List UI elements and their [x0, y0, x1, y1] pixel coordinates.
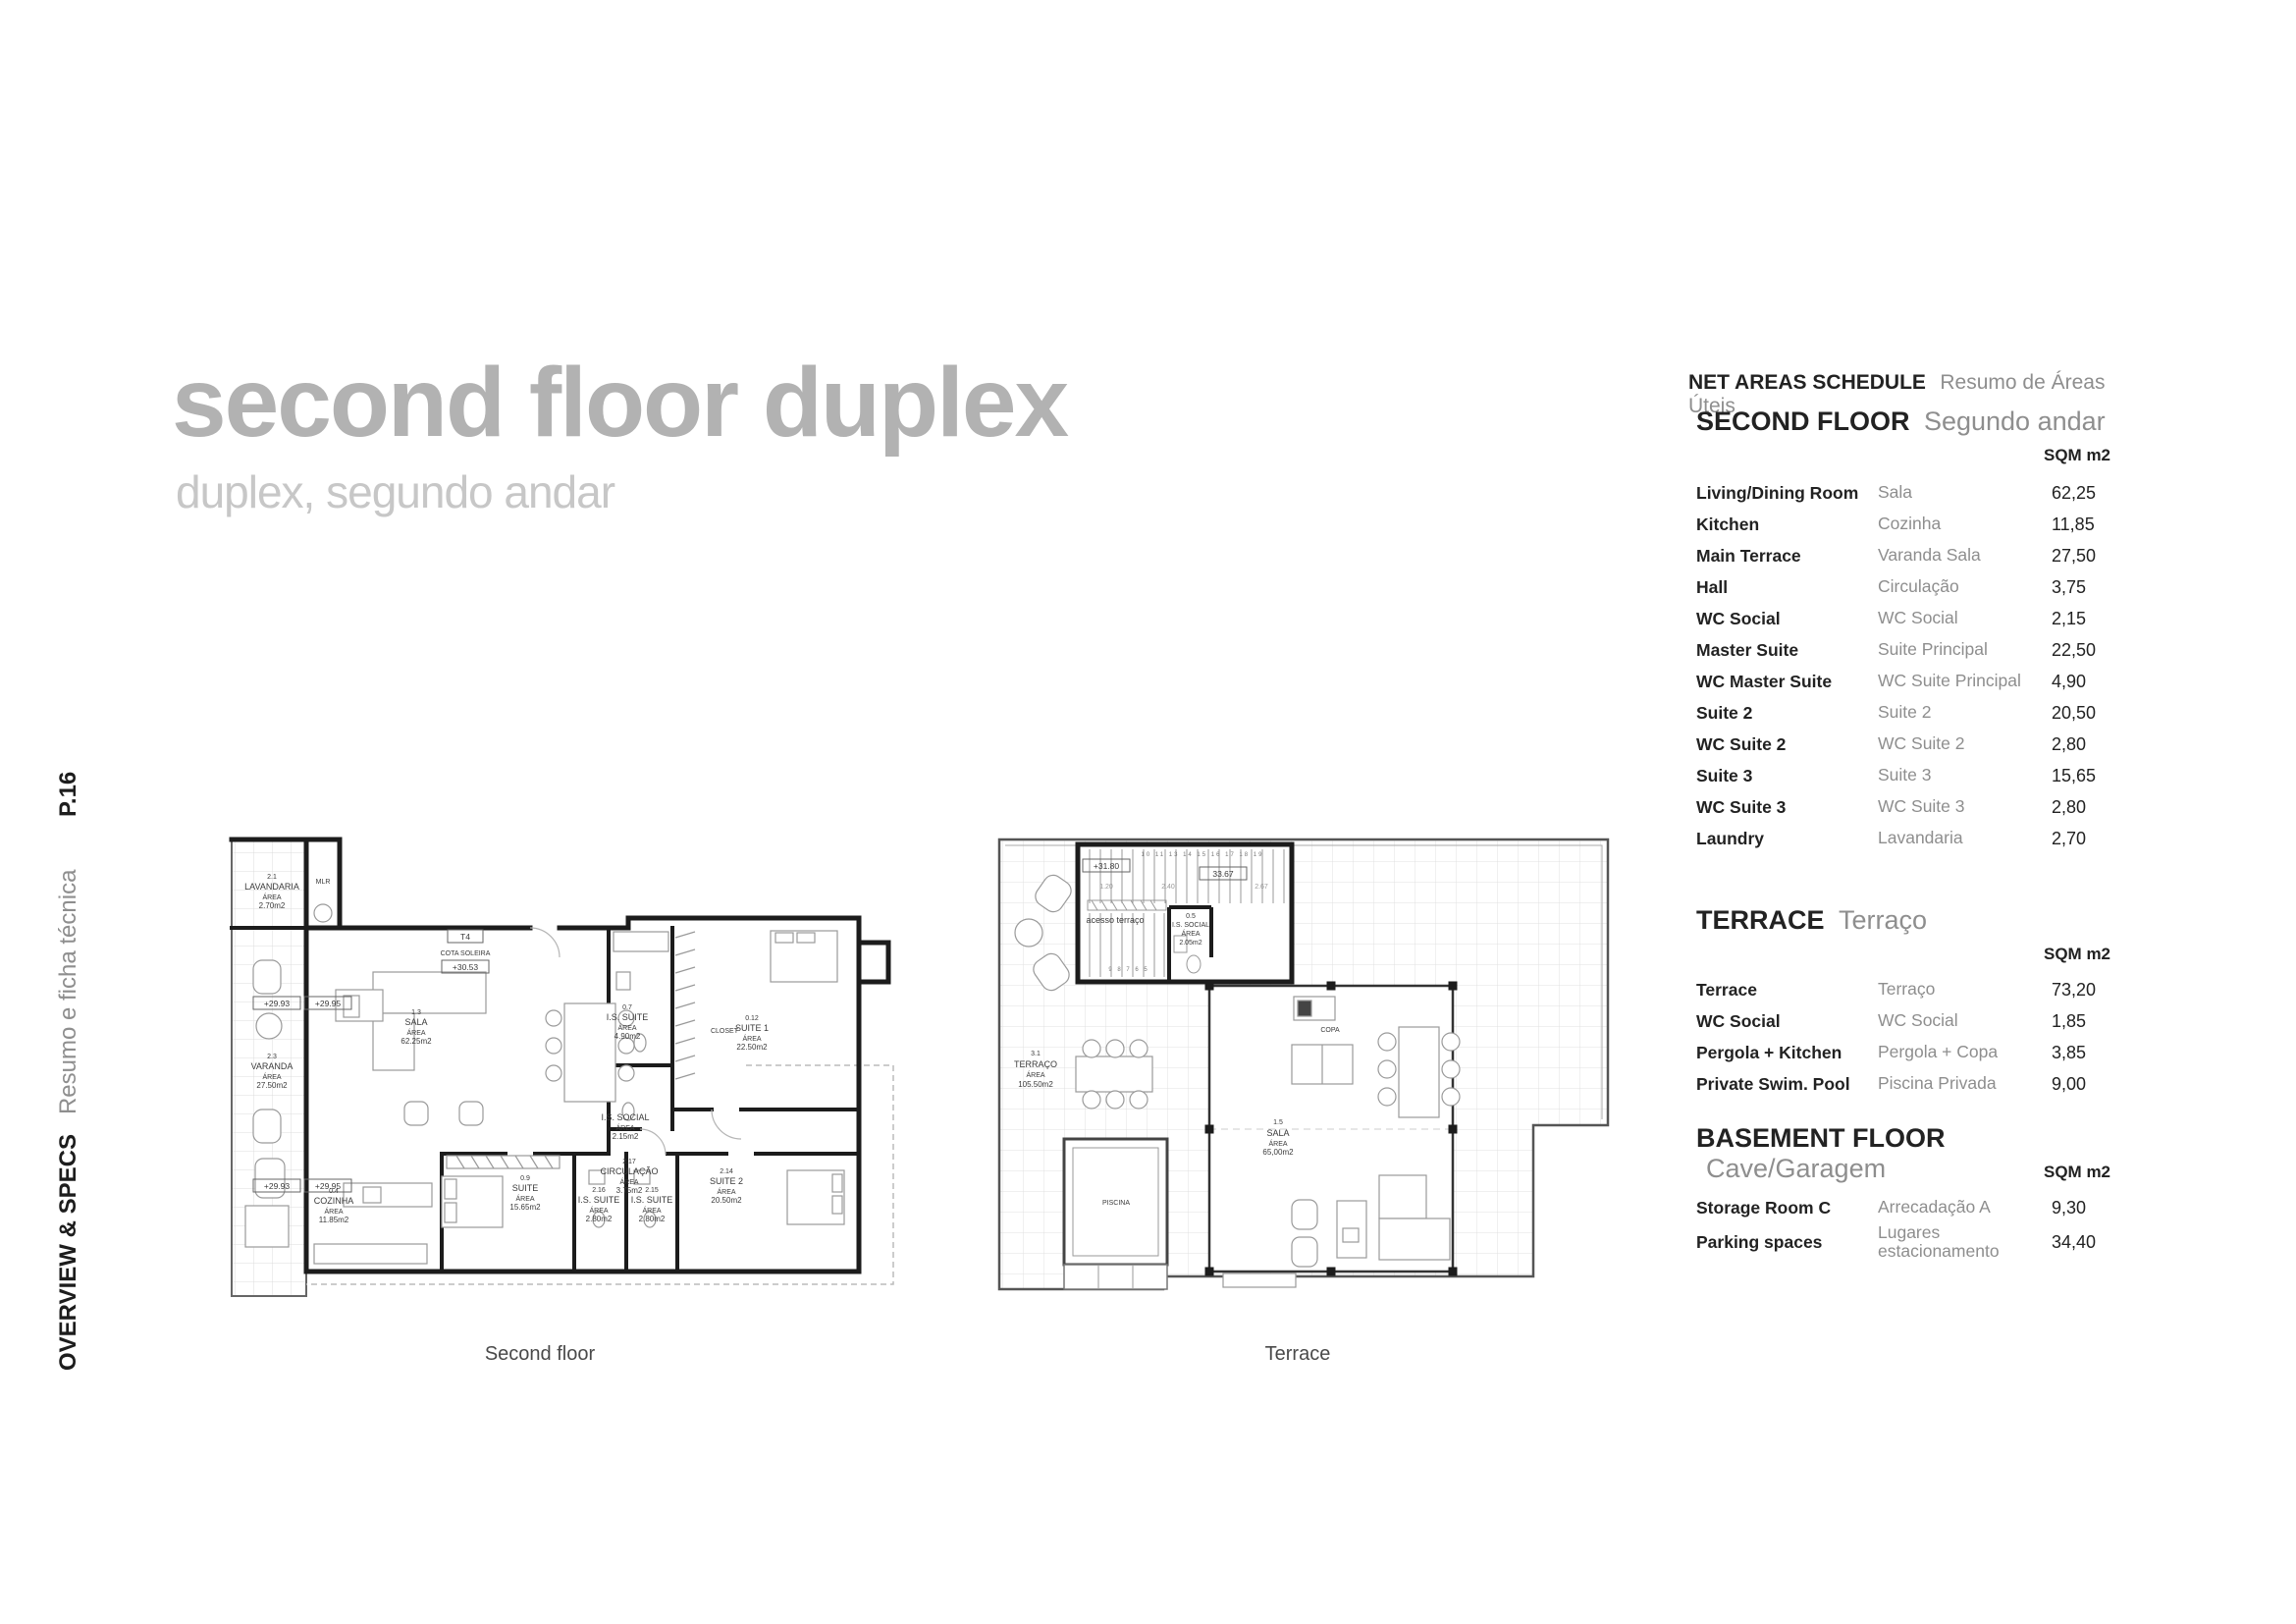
- room-label: LAVANDARIA: [244, 882, 299, 892]
- unit-label: SQM m2: [2044, 1163, 2110, 1182]
- area-cell-pt: Varanda Sala: [1878, 546, 2052, 565]
- area-cell-sqm: 4,90: [2052, 672, 2116, 692]
- room-label: 22.50m2: [736, 1043, 768, 1052]
- area-cell-pt: Circulação: [1878, 577, 2052, 596]
- area-row: KitchenCozinha11,85: [1688, 509, 2116, 540]
- area-cell-en: Living/Dining Room: [1696, 483, 1878, 504]
- area-cell-en: WC Social: [1696, 1011, 1878, 1032]
- dim-label: 2.40: [1161, 884, 1175, 891]
- area-cell-en: WC Master Suite: [1696, 672, 1878, 692]
- dim-label: 33.67: [1212, 869, 1234, 879]
- area-cell-sqm: 34,40: [2052, 1232, 2116, 1253]
- room-label: COZINHA: [314, 1196, 354, 1206]
- area-cell-sqm: 62,25: [2052, 483, 2116, 504]
- room-label: ÁREA: [1268, 1139, 1287, 1148]
- area-cell-en: Suite 2: [1696, 703, 1878, 724]
- room-label: 1.3: [411, 1009, 421, 1016]
- room-label: 0.5: [1186, 913, 1196, 920]
- room-label: 2.15: [645, 1187, 659, 1194]
- room-label: I.S. SUITE: [631, 1195, 673, 1205]
- area-cell-en: Parking spaces: [1696, 1232, 1878, 1253]
- area-row: Main TerraceVaranda Sala27,50: [1688, 540, 2116, 571]
- schedule-section-terrace: TERRACE Terraço SQM m2 TerraceTerraço73,…: [1688, 905, 2116, 1100]
- area-cell-pt: Suite Principal: [1878, 640, 2052, 659]
- area-cell-pt: WC Suite 3: [1878, 797, 2052, 816]
- room-label: SUITE 2: [710, 1176, 743, 1186]
- area-row: WC SocialWC Social1,85: [1688, 1005, 2116, 1037]
- area-cell-en: Pergola + Kitchen: [1696, 1043, 1878, 1063]
- room-label: PISCINA: [1102, 1200, 1130, 1207]
- room-label: 4.90m2: [614, 1032, 641, 1041]
- room-label: 2.17: [622, 1159, 636, 1165]
- area-cell-pt: Cozinha: [1878, 514, 2052, 533]
- section-heading-pt: Segundo andar: [1924, 406, 2106, 436]
- area-cell-en: WC Suite 3: [1696, 797, 1878, 818]
- sidebar-section-label: OVERVIEW & SPECS Resumo e ficha técnica: [55, 884, 82, 1371]
- section-heading-en: SECOND FLOOR: [1696, 406, 1910, 436]
- dim-label: +30.53: [453, 962, 479, 972]
- second-floor-plan: 2.1 LAVANDARIA ÁREA 2.70m2 MLR T4 COTA S…: [216, 815, 903, 1306]
- area-cell-pt: Arrecadação A: [1878, 1198, 2052, 1217]
- room-label: I.S. SUITE: [578, 1195, 620, 1205]
- area-row: WC Suite 2WC Suite 22,80: [1688, 729, 2116, 760]
- room-label: 27.50m2: [256, 1081, 288, 1090]
- unit-label: SQM m2: [2044, 945, 2110, 964]
- unit-label: SQM m2: [2044, 446, 2110, 465]
- area-cell-sqm: 3,85: [2052, 1043, 2116, 1063]
- area-cell-pt: WC Social: [1878, 609, 2052, 627]
- schedule-title: NET AREAS SCHEDULE Resumo de Áreas Úteis: [1688, 371, 2116, 397]
- area-cell-en: WC Social: [1696, 609, 1878, 629]
- area-row: Living/Dining RoomSala62,25: [1688, 477, 2116, 509]
- area-rows: Living/Dining RoomSala62,25KitchenCozinh…: [1688, 477, 2116, 854]
- area-cell-pt: Sala: [1878, 483, 2052, 502]
- schedule-title-en: NET AREAS SCHEDULE: [1688, 371, 1926, 394]
- room-label: 0.4: [329, 1188, 339, 1195]
- area-cell-en: Laundry: [1696, 829, 1878, 849]
- area-cell-en: Kitchen: [1696, 514, 1878, 535]
- elevation-label: +29.93: [264, 1181, 291, 1191]
- room-label: I.S. SOCIAL: [1172, 922, 1209, 929]
- area-cell-en: Main Terrace: [1696, 546, 1878, 567]
- room-label: acesso terraço: [1086, 915, 1144, 925]
- room-label: 2.15m2: [613, 1132, 639, 1141]
- room-label: 0.12: [745, 1015, 759, 1022]
- area-row: WC Suite 3WC Suite 32,80: [1688, 791, 2116, 823]
- room-label: VARANDA: [251, 1061, 294, 1071]
- room-label: 0.9: [520, 1175, 530, 1182]
- room-label: COPA: [1320, 1027, 1340, 1034]
- page-number: P.16: [55, 774, 82, 817]
- area-cell-en: Master Suite: [1696, 640, 1878, 661]
- area-row: HallCirculação3,75: [1688, 571, 2116, 603]
- room-label: 62.25m2: [400, 1037, 432, 1046]
- area-cell-pt: WC Suite 2: [1878, 734, 2052, 753]
- room-label: 3.1: [1031, 1051, 1041, 1057]
- room-label: 1.5: [1273, 1119, 1283, 1126]
- room-label: ÁREA: [1026, 1070, 1044, 1079]
- room-label: MLR: [316, 879, 331, 886]
- area-row: LaundryLavandaria2,70: [1688, 823, 2116, 854]
- area-cell-pt: Suite 2: [1878, 703, 2052, 722]
- plan-caption-second-floor: Second floor: [432, 1343, 648, 1366]
- area-cell-pt: Lugares estacionamento: [1878, 1223, 2052, 1262]
- page-title: second floor duplex: [172, 353, 1067, 452]
- area-cell-sqm: 20,50: [2052, 703, 2116, 724]
- room-label: 11.85m2: [319, 1216, 349, 1224]
- room-label: ÁREA: [324, 1207, 343, 1216]
- room-label: 0.7: [622, 1004, 632, 1011]
- room-label: SALA: [1266, 1128, 1289, 1138]
- room-label: 2.05m2: [1179, 940, 1201, 947]
- dim-label: 1.20: [1099, 884, 1113, 891]
- area-cell-sqm: 2,15: [2052, 609, 2116, 629]
- area-cell-en: Hall: [1696, 577, 1878, 598]
- room-label: 2.3: [267, 1054, 277, 1060]
- room-label: ÁREA: [619, 1177, 638, 1186]
- area-cell-en: Storage Room C: [1696, 1198, 1878, 1218]
- area-row: Master SuiteSuite Principal22,50: [1688, 634, 2116, 666]
- room-label: ÁREA: [717, 1187, 735, 1196]
- swimming-pool: [1064, 1139, 1167, 1289]
- room-label: 105.50m2: [1018, 1080, 1053, 1089]
- room-label: 2.16: [592, 1187, 606, 1194]
- room-label: SALA: [404, 1017, 427, 1027]
- section-heading-en: TERRACE: [1696, 905, 1825, 935]
- area-cell-sqm: 2,80: [2052, 734, 2116, 755]
- dim-label: 2.67: [1255, 884, 1268, 891]
- room-label: 2.14: [720, 1168, 733, 1175]
- dim-label: COTA SOLEIRA: [441, 950, 491, 957]
- area-cell-sqm: 9,30: [2052, 1198, 2116, 1218]
- area-cell-en: Suite 3: [1696, 766, 1878, 786]
- elevation-label: +29.95: [315, 999, 342, 1008]
- room-label: ÁREA: [589, 1206, 608, 1215]
- sidebar-label-en: OVERVIEW & SPECS: [55, 1134, 81, 1371]
- area-row: Parking spacesLugares estacionamento34,4…: [1688, 1223, 2116, 1262]
- area-cell-pt: Terraço: [1878, 980, 2052, 999]
- brochure-page: second floor duplex duplex, segundo anda…: [0, 0, 2296, 1624]
- room-label: ÁREA: [262, 893, 281, 901]
- room-label: CIRCULAÇÃO: [600, 1166, 658, 1176]
- area-rows: TerraceTerraço73,20WC SocialWC Social1,8…: [1688, 974, 2116, 1100]
- area-row: Storage Room CArrecadação A9,30: [1688, 1192, 2116, 1223]
- room-label: 65,00m2: [1262, 1148, 1294, 1157]
- area-row: Suite 2Suite 220,50: [1688, 697, 2116, 729]
- area-cell-sqm: 11,85: [2052, 514, 2116, 535]
- elevation-label: +31.80: [1094, 861, 1120, 871]
- net-areas-schedule: NET AREAS SCHEDULE Resumo de Áreas Úteis…: [1688, 371, 2116, 1262]
- area-row: WC SocialWC Social2,15: [1688, 603, 2116, 634]
- area-rows: Storage Room CArrecadação A9,30Parking s…: [1688, 1192, 2116, 1262]
- area-cell-sqm: 3,75: [2052, 577, 2116, 598]
- area-cell-en: Private Swim. Pool: [1696, 1074, 1878, 1095]
- area-cell-sqm: 1,85: [2052, 1011, 2116, 1032]
- room-label: ÁREA: [262, 1072, 281, 1081]
- area-cell-en: WC Suite 2: [1696, 734, 1878, 755]
- area-cell-pt: Pergola + Copa: [1878, 1043, 2052, 1061]
- plan-caption-terrace: Terrace: [1190, 1343, 1406, 1366]
- schedule-section-basement: BASEMENT FLOOR Cave/Garagem SQM m2 Stora…: [1688, 1123, 2116, 1262]
- room-label: ÁREA: [515, 1194, 534, 1203]
- room-label: ÁREA: [617, 1023, 636, 1032]
- area-row: WC Master SuiteWC Suite Principal4,90: [1688, 666, 2116, 697]
- room-label: 3.75m2: [616, 1186, 643, 1195]
- stair-numbers: 9 8 7 6 5: [1108, 967, 1148, 973]
- section-heading-en: BASEMENT FLOOR: [1696, 1123, 1946, 1153]
- area-cell-sqm: 27,50: [2052, 546, 2116, 567]
- dim-label: T4: [460, 932, 470, 942]
- area-cell-sqm: 2,70: [2052, 829, 2116, 849]
- schedule-section-second-floor: SECOND FLOOR Segundo andar SQM m2 Living…: [1688, 406, 2116, 854]
- area-cell-sqm: 22,50: [2052, 640, 2116, 661]
- page-subtitle: duplex, segundo andar: [176, 465, 614, 518]
- room-label: 15.65m2: [509, 1203, 541, 1212]
- area-cell-pt: WC Social: [1878, 1011, 2052, 1030]
- area-cell-sqm: 15,65: [2052, 766, 2116, 786]
- room-label: TERRAÇO: [1014, 1059, 1057, 1069]
- room-label: 2.80m2: [639, 1215, 666, 1223]
- area-cell-pt: Piscina Privada: [1878, 1074, 2052, 1093]
- area-cell-pt: Lavandaria: [1878, 829, 2052, 847]
- area-row: Suite 3Suite 315,65: [1688, 760, 2116, 791]
- elevation-label: +29.93: [264, 999, 291, 1008]
- area-cell-pt: Suite 3: [1878, 766, 2052, 785]
- room-label: 20.50m2: [711, 1196, 742, 1205]
- room-label: 2.1: [267, 874, 277, 881]
- room-label: ÁREA: [742, 1034, 761, 1043]
- area-cell-en: Terrace: [1696, 980, 1878, 1001]
- room-label: ÁREA: [642, 1206, 661, 1215]
- room-label: ÁREA: [615, 1123, 634, 1132]
- room-label: SUITE: [512, 1183, 539, 1193]
- stair-numbers: 10 11 13 14 15 16 17 18 19: [1142, 852, 1264, 858]
- area-cell-sqm: 9,00: [2052, 1074, 2116, 1095]
- section-heading-pt: Terraço: [1839, 905, 1927, 935]
- area-row: TerraceTerraço73,20: [1688, 974, 2116, 1005]
- room-label: ÁREA: [1181, 929, 1200, 938]
- terrace-plan: +31.80 33.67 1.20 2.40 2.67 10 11 13 14 …: [982, 820, 1629, 1291]
- area-cell-sqm: 73,20: [2052, 980, 2116, 1001]
- room-label: 2.70m2: [259, 901, 286, 910]
- area-cell-sqm: 2,80: [2052, 797, 2116, 818]
- room-label: SUITE 1: [735, 1023, 769, 1033]
- area-row: Pergola + KitchenPergola + Copa3,85: [1688, 1037, 2116, 1068]
- room-label: I.S. SOCIAL: [601, 1112, 649, 1122]
- sidebar-label-pt: Resumo e ficha técnica: [55, 870, 81, 1114]
- area-row: Private Swim. PoolPiscina Privada9,00: [1688, 1068, 2116, 1100]
- room-label: ÁREA: [406, 1028, 425, 1037]
- room-label: I.S. SUITE: [607, 1012, 649, 1022]
- room-label: 2.80m2: [586, 1215, 613, 1223]
- area-cell-pt: WC Suite Principal: [1878, 672, 2052, 690]
